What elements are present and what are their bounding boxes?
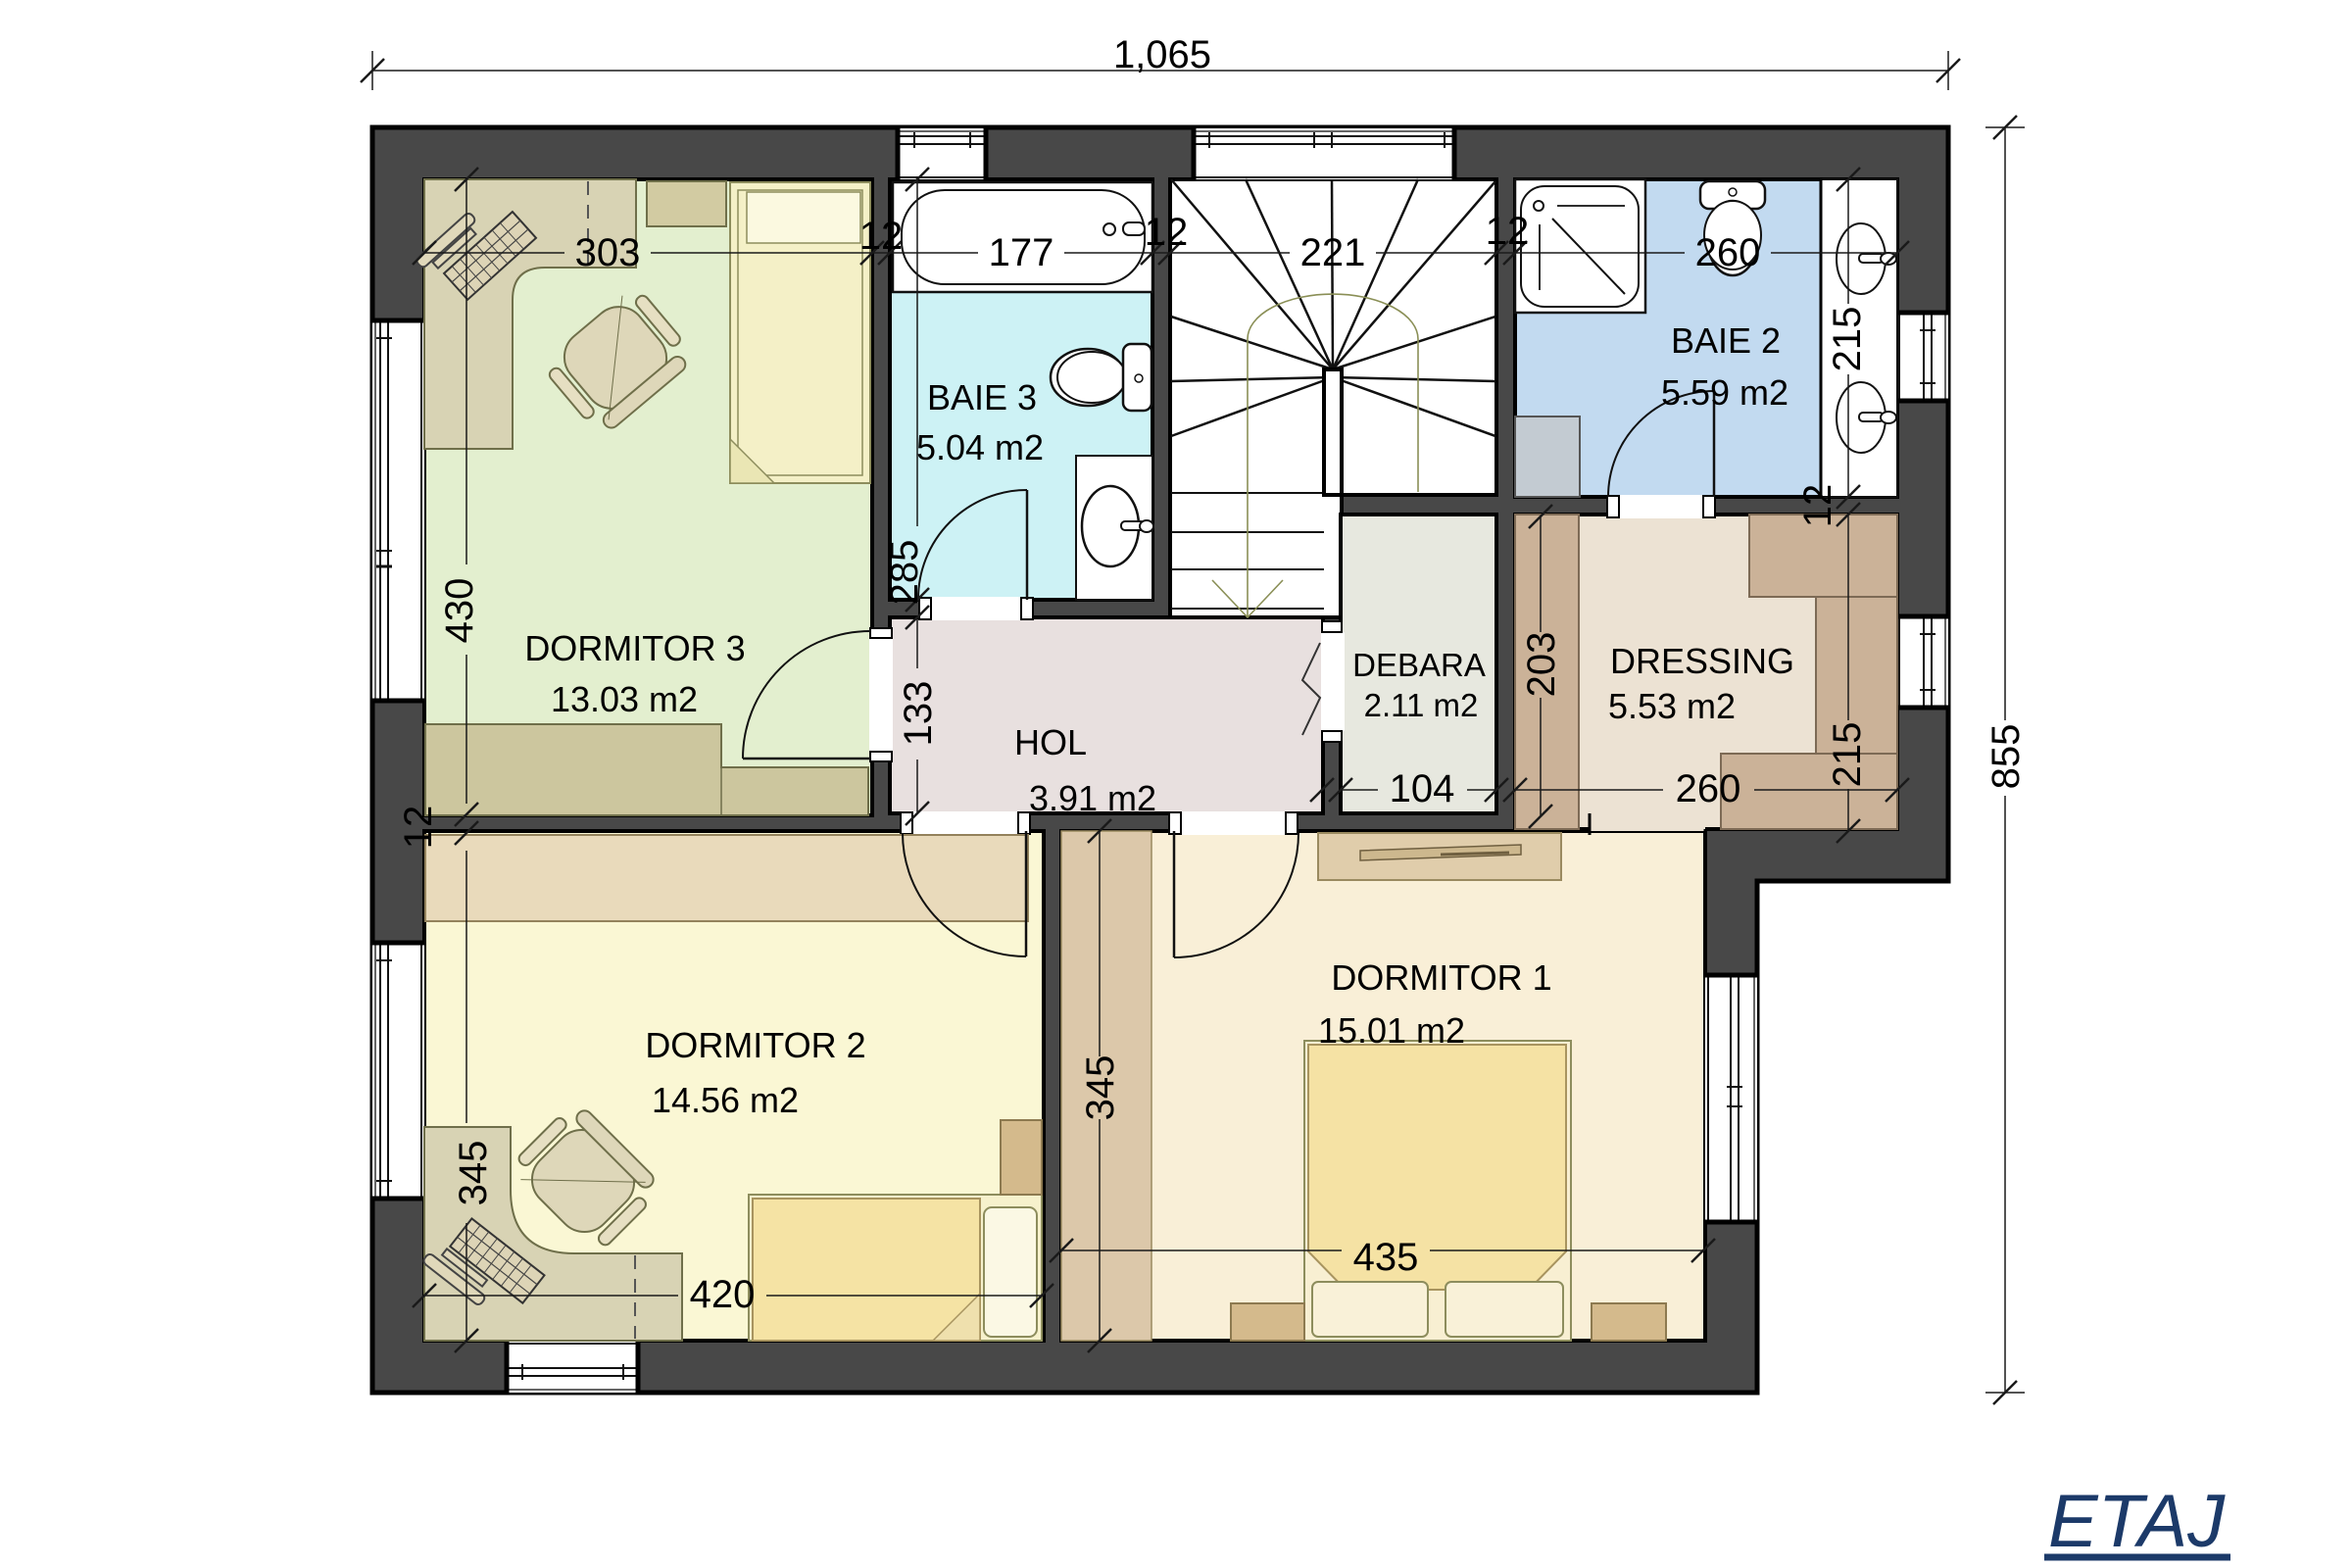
svg-text:435: 435 bbox=[1353, 1236, 1419, 1279]
svg-text:285: 285 bbox=[883, 540, 926, 606]
svg-text:12: 12 bbox=[1796, 484, 1839, 528]
svg-text:HOL: HOL bbox=[1014, 722, 1087, 762]
svg-text:DORMITOR 1: DORMITOR 1 bbox=[1331, 957, 1551, 998]
svg-text:420: 420 bbox=[690, 1273, 756, 1316]
svg-text:345: 345 bbox=[452, 1141, 495, 1206]
svg-text:13.03 m2: 13.03 m2 bbox=[551, 679, 698, 719]
svg-text:12: 12 bbox=[1486, 210, 1530, 253]
svg-text:215: 215 bbox=[1826, 307, 1869, 372]
svg-text:177: 177 bbox=[989, 231, 1054, 274]
svg-text:DORMITOR 2: DORMITOR 2 bbox=[645, 1025, 865, 1065]
svg-text:260: 260 bbox=[1676, 767, 1741, 810]
svg-text:14.56 m2: 14.56 m2 bbox=[652, 1080, 799, 1120]
svg-text:215: 215 bbox=[1826, 722, 1869, 788]
svg-text:5.53 m2: 5.53 m2 bbox=[1608, 686, 1736, 726]
svg-text:104: 104 bbox=[1390, 767, 1455, 810]
svg-text:DEBARA: DEBARA bbox=[1352, 647, 1486, 683]
svg-text:12: 12 bbox=[397, 806, 440, 850]
svg-text:BAIE 2: BAIE 2 bbox=[1671, 320, 1781, 361]
svg-text:430: 430 bbox=[438, 578, 481, 644]
svg-text:221: 221 bbox=[1300, 231, 1366, 274]
svg-text:345: 345 bbox=[1079, 1055, 1122, 1121]
svg-text:1,065: 1,065 bbox=[1113, 33, 1211, 76]
svg-text:5.59 m2: 5.59 m2 bbox=[1661, 372, 1788, 413]
svg-text:DRESSING: DRESSING bbox=[1610, 641, 1794, 681]
svg-text:ETAJ: ETAJ bbox=[2048, 1480, 2226, 1563]
svg-text:203: 203 bbox=[1520, 632, 1563, 698]
svg-text:12: 12 bbox=[859, 215, 904, 258]
svg-text:303: 303 bbox=[575, 231, 641, 274]
svg-text:12: 12 bbox=[1145, 211, 1189, 254]
svg-text:3.91 m2: 3.91 m2 bbox=[1029, 778, 1156, 818]
svg-text:5.04 m2: 5.04 m2 bbox=[916, 427, 1044, 467]
svg-text:BAIE 3: BAIE 3 bbox=[927, 377, 1037, 417]
svg-text:15.01 m2: 15.01 m2 bbox=[1318, 1010, 1465, 1051]
svg-text:260: 260 bbox=[1695, 231, 1761, 274]
svg-text:133: 133 bbox=[897, 681, 940, 747]
svg-text:2.11 m2: 2.11 m2 bbox=[1364, 687, 1479, 723]
svg-text:DORMITOR 3: DORMITOR 3 bbox=[524, 628, 745, 668]
svg-text:855: 855 bbox=[1984, 724, 2028, 790]
